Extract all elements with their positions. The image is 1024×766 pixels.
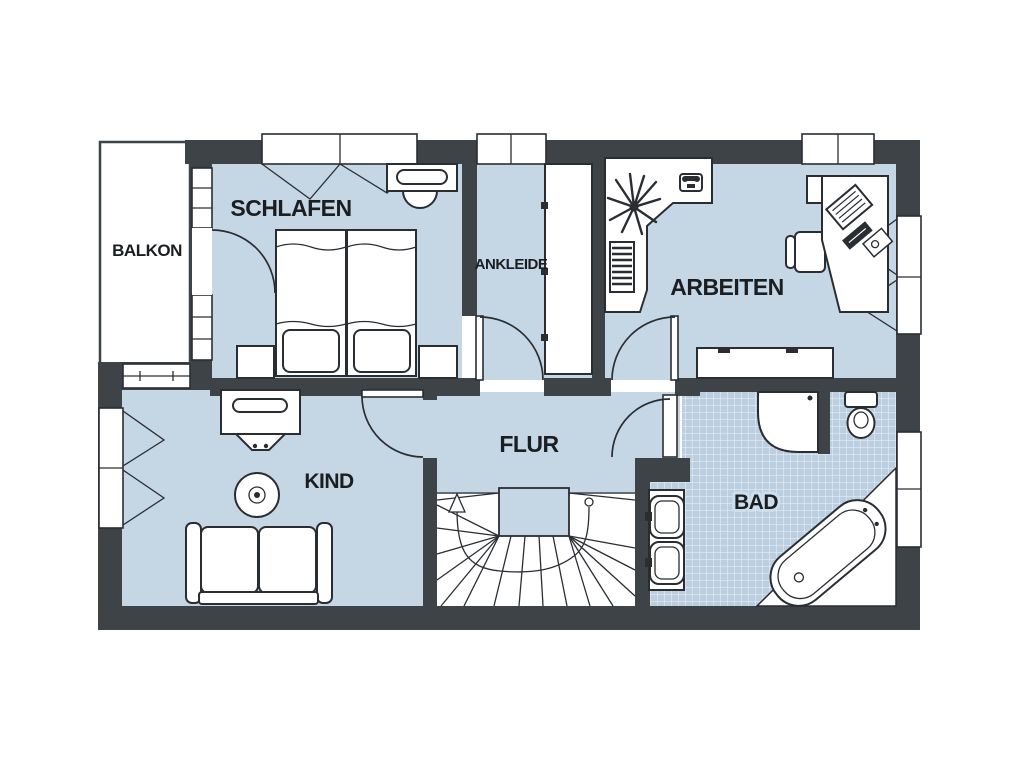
- balkon-label: BALKON: [112, 241, 182, 260]
- sofa-backrail: [199, 592, 318, 604]
- telephone-icon: [680, 174, 702, 191]
- wall-toilet-partition: [818, 392, 830, 454]
- floor-plan-drawing: BALKON SCHLAFEN ANKLEIDE ARBEITEN KIND F…: [0, 0, 1024, 766]
- chair-foot: [253, 444, 257, 448]
- sink: [645, 496, 684, 538]
- kind-doorway-gap: [423, 400, 437, 458]
- kind-door-leaf: [362, 390, 423, 397]
- flur-label: FLUR: [499, 431, 559, 457]
- wardrobe: [545, 164, 592, 374]
- bookshelf: [610, 242, 634, 292]
- kind-label: KIND: [304, 470, 354, 493]
- sideboard-handle: [786, 348, 798, 353]
- desk-cabinet: [807, 176, 822, 203]
- dresser-drawer: [397, 170, 447, 184]
- wall-schlafen-ankleide: [462, 164, 477, 316]
- pillow-left: [283, 330, 339, 372]
- sideboard: [697, 348, 833, 378]
- sofa: [186, 523, 332, 604]
- arbeiten-door-leaf: [671, 316, 678, 380]
- wall-right: [896, 140, 920, 630]
- wall-flur-bad-top: [677, 378, 690, 396]
- nightstand-left: [237, 346, 274, 378]
- wall-flur-top-a: [437, 378, 480, 396]
- bad-door-leaf: [663, 395, 677, 457]
- stair-walk-line-start: [585, 498, 593, 506]
- toilet-tank: [845, 392, 877, 407]
- arbeiten-top-window: [802, 134, 874, 164]
- sofa-cushion: [201, 527, 258, 593]
- shower-drain: [808, 396, 813, 401]
- schlafen-balcony-window-upper: [192, 168, 212, 228]
- chair-backrest: [786, 236, 795, 268]
- sofa-arm-left: [186, 523, 201, 603]
- wall-bottom: [98, 606, 920, 630]
- rug-center: [254, 492, 260, 498]
- sofa-arm-right: [317, 523, 332, 603]
- ankleide-top-window: [477, 134, 546, 164]
- chair-foot: [264, 444, 268, 448]
- kind-balcony-window: [123, 364, 190, 388]
- wall-arbeiten-bad: [683, 378, 896, 392]
- arbeiten-label: ARBEITEN: [670, 274, 784, 300]
- wall-ankleide-arbeiten: [592, 164, 605, 396]
- pillow-right: [354, 330, 410, 372]
- bad-label: BAD: [734, 491, 778, 514]
- bad-right-window: [897, 432, 921, 547]
- wardrobe-hinge: [541, 334, 548, 341]
- wardrobe-hinge: [541, 202, 548, 209]
- wall-stair-right: [635, 458, 650, 608]
- balcony-doorway-gap: [192, 228, 212, 295]
- sofa-cushion: [259, 527, 316, 593]
- schlafen-balcony-window-lower: [192, 295, 212, 360]
- ankleide-label: ANKLEIDE: [475, 256, 548, 273]
- nightstand-right: [419, 346, 457, 378]
- ankleide-door-leaf: [476, 316, 483, 380]
- schlafen-label: SCHLAFEN: [230, 195, 351, 221]
- kids-desk-drawer: [233, 399, 287, 412]
- ankleide-furniture: [541, 164, 592, 374]
- stairwell-opening: [499, 488, 569, 536]
- sink: [645, 542, 684, 584]
- floor-plan-page: BALKON SCHLAFEN ANKLEIDE ARBEITEN KIND F…: [0, 0, 1024, 766]
- sideboard-handle: [718, 348, 730, 353]
- office-chair: [795, 232, 825, 272]
